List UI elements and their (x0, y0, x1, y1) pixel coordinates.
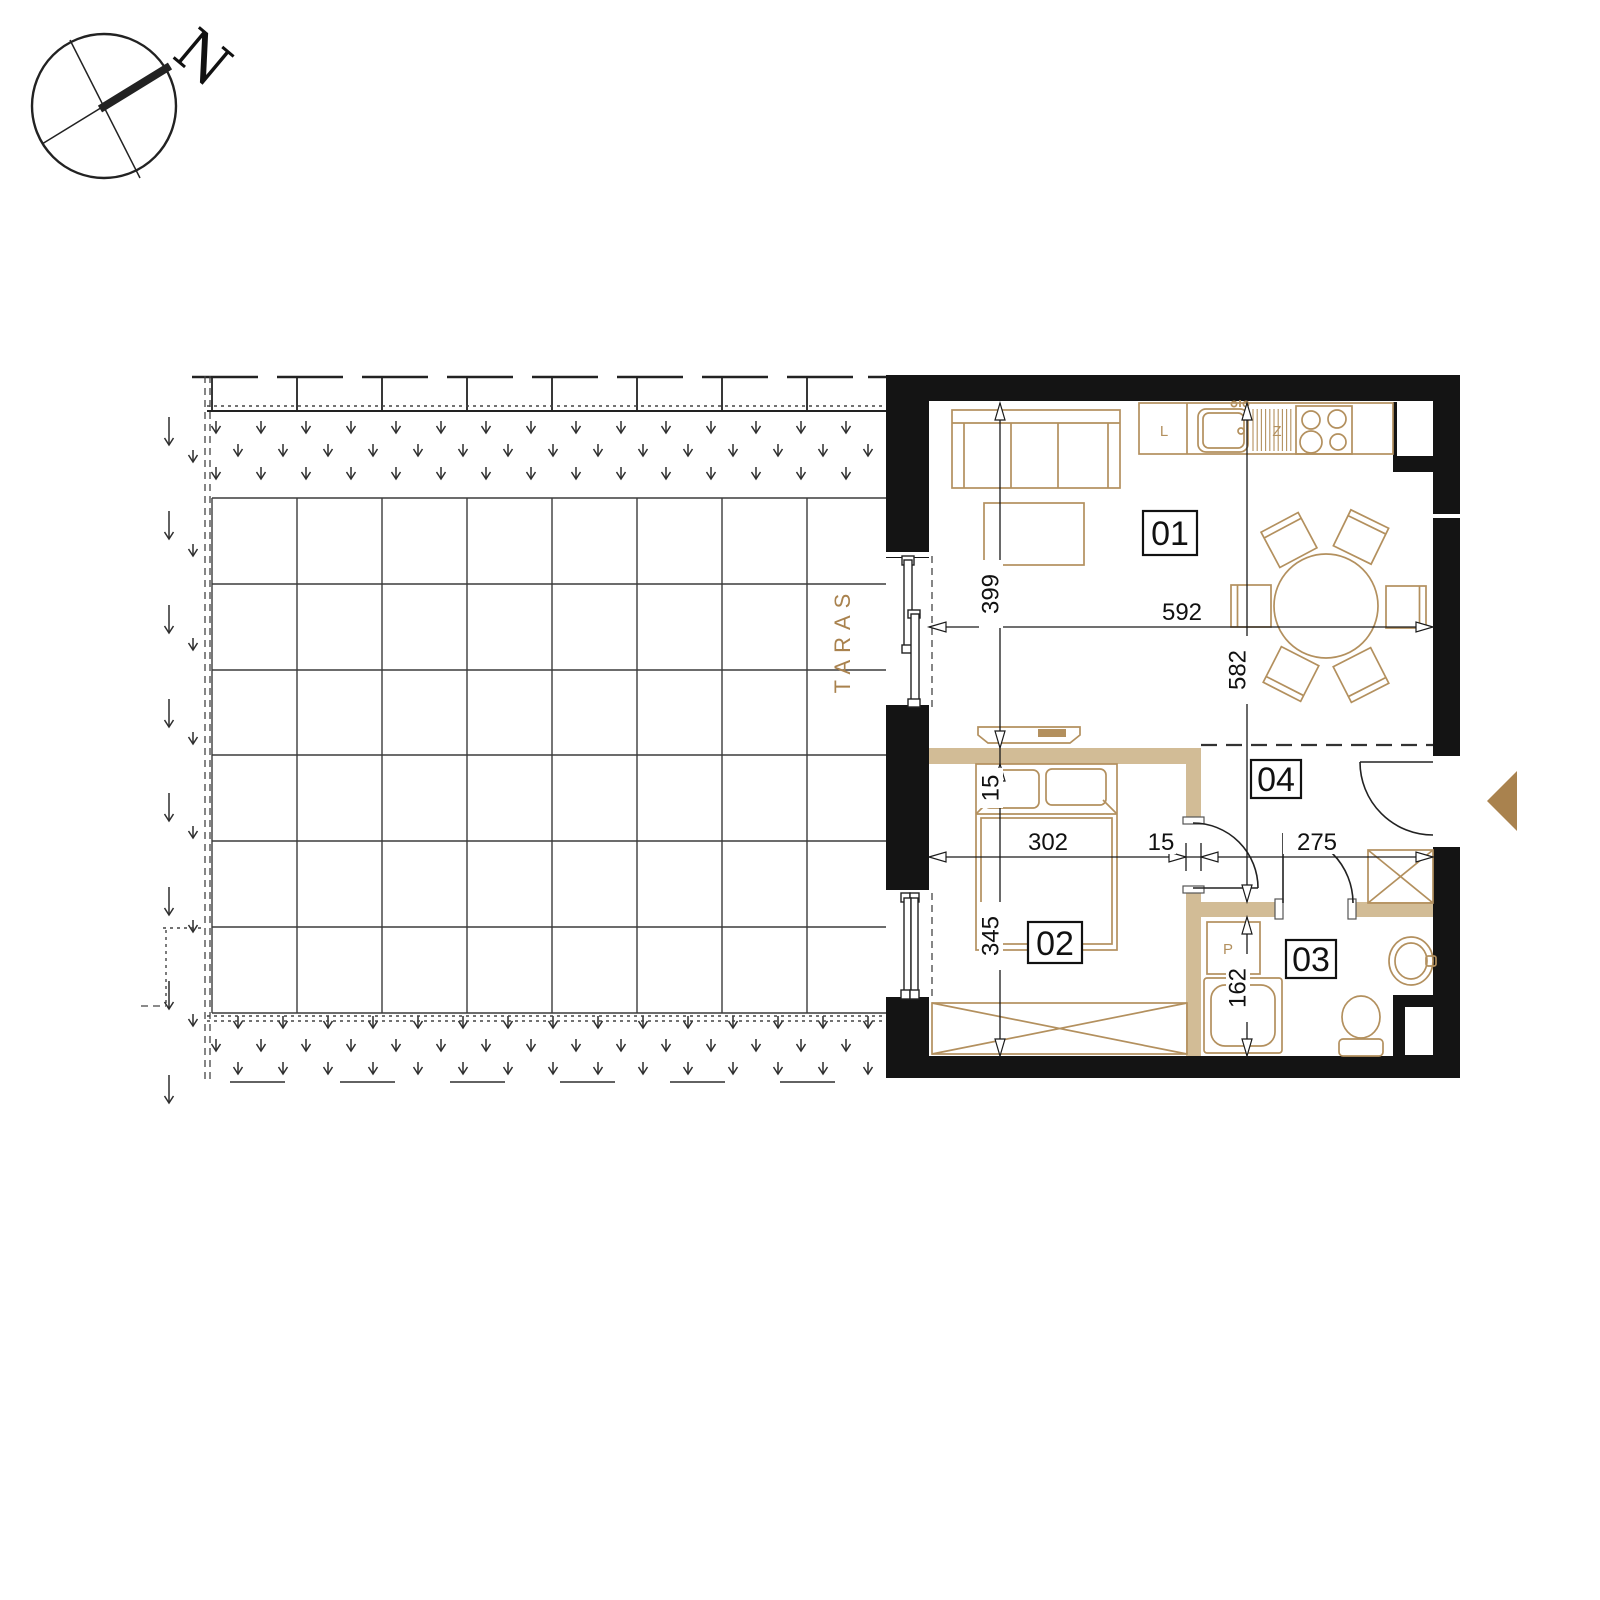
svg-text:04: 04 (1257, 761, 1295, 799)
toilet (1339, 996, 1383, 1056)
wall-west-middle (886, 705, 929, 895)
partition-bath-north-left (1201, 902, 1275, 917)
north-needle-icon (100, 66, 170, 109)
wall-west-upper (886, 375, 929, 558)
floor-plan-page: N TARAS (0, 0, 1600, 1600)
coffee-table (984, 503, 1084, 565)
sill-entry-top (1433, 756, 1460, 761)
wall-joint-east (1433, 514, 1460, 518)
dim-hall-width: 275 (1297, 829, 1337, 856)
wall-south (886, 1056, 1460, 1078)
room-label-bedroom: 02 (1028, 922, 1082, 963)
entry-door (1360, 762, 1433, 835)
dining-set (1231, 510, 1426, 703)
svg-text:03: 03 (1292, 941, 1330, 979)
shaft-niche-southeast (1405, 1007, 1433, 1055)
chair (1231, 585, 1271, 627)
room-label-living: 01 (1143, 511, 1197, 555)
dim-partition-thickness-h: 15 (1148, 829, 1175, 856)
dimensions: 399 15 345 582 162 592 302 15 275 (929, 403, 1433, 1056)
terrace: TARAS (141, 376, 886, 1103)
jamb-bath-door-right (1348, 899, 1356, 919)
partition-bath-north-right (1356, 902, 1433, 917)
wall-east-upper (1433, 375, 1460, 761)
room-label-bathroom: 03 (1286, 940, 1336, 979)
balcony-door-window (902, 556, 932, 707)
room-label-hall: 04 (1251, 760, 1301, 799)
sill-entry-bottom (1433, 842, 1460, 847)
jamb-bath-door-left (1275, 899, 1283, 919)
dim-bath-depth: 162 (1224, 968, 1251, 1008)
entrance-arrow-icon (1487, 771, 1517, 831)
terrace-tile-grid (212, 498, 886, 1013)
tv-shelf (978, 727, 1080, 743)
dim-living-width: 592 (1162, 599, 1202, 626)
shaft-border-bottom (1393, 456, 1437, 472)
fridge-label: L (1160, 423, 1168, 440)
compass-rose: N (32, 15, 244, 178)
partition-bedroom-east-lower (1186, 893, 1201, 1056)
exterior-walls (886, 375, 1460, 1078)
jamb-bedroom-door-bottom (1183, 886, 1204, 893)
sofa (952, 410, 1120, 488)
sink-label: Z (1272, 423, 1281, 440)
kitchen-sink (1198, 400, 1249, 452)
dim-living-depth: 399 (977, 574, 1004, 614)
partition-bedroom-north (929, 748, 1201, 764)
kitchen-counter: L Z (1139, 400, 1393, 454)
svg-text:02: 02 (1036, 925, 1074, 963)
chair (1261, 512, 1317, 567)
bedroom-window (901, 893, 932, 999)
interior-partitions (929, 748, 1433, 1056)
dim-bedroom-depth: 345 (977, 916, 1004, 956)
partition-bedroom-east-upper (1186, 764, 1201, 817)
dim-partition-thickness-v: 15 (977, 775, 1004, 802)
washbasin (1389, 937, 1436, 985)
dim-apartment-depth: 582 (1224, 650, 1251, 690)
dining-table (1274, 554, 1378, 658)
furniture: L Z (932, 400, 1436, 1056)
terrace-label: TARAS (830, 587, 855, 694)
chair (1386, 586, 1426, 628)
svg-text:01: 01 (1151, 515, 1189, 553)
bedroom-door (1193, 823, 1258, 888)
dim-bedroom-width: 302 (1028, 829, 1068, 856)
terrace-fence (192, 376, 886, 410)
floor-plan-drawing: N TARAS (0, 0, 1600, 1600)
wall-north (886, 375, 1460, 401)
bedroom-wardrobe (932, 1003, 1187, 1054)
stove (1296, 406, 1352, 454)
terrace-grass-hatching (165, 417, 873, 1103)
